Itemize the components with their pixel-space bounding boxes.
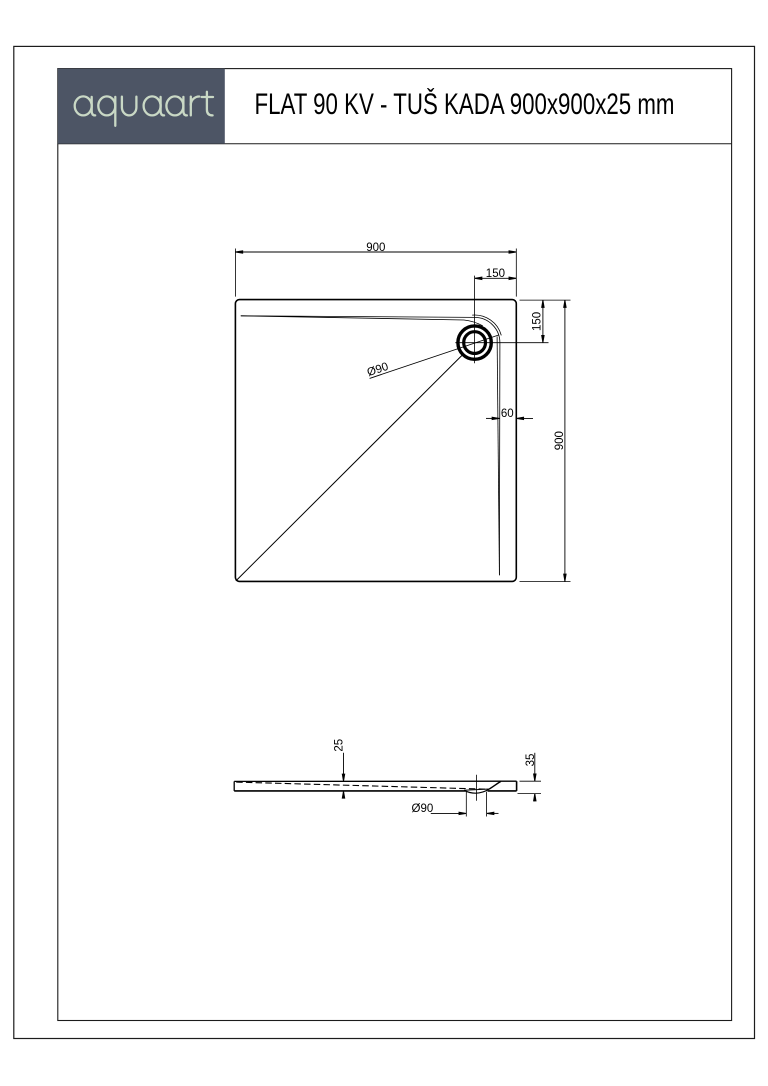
svg-text:Ø90: Ø90 (412, 803, 434, 815)
svg-text:FLAT 90 KV - TUŠ KADA 900x900x: FLAT 90 KV - TUŠ KADA 900x900x25 mm (255, 87, 675, 121)
svg-text:25: 25 (334, 739, 346, 752)
svg-text:900: 900 (554, 431, 566, 450)
svg-text:60: 60 (501, 408, 514, 420)
svg-text:150: 150 (532, 312, 544, 331)
svg-text:150: 150 (486, 268, 505, 280)
svg-text:900: 900 (366, 242, 385, 254)
svg-text:35: 35 (525, 754, 537, 767)
